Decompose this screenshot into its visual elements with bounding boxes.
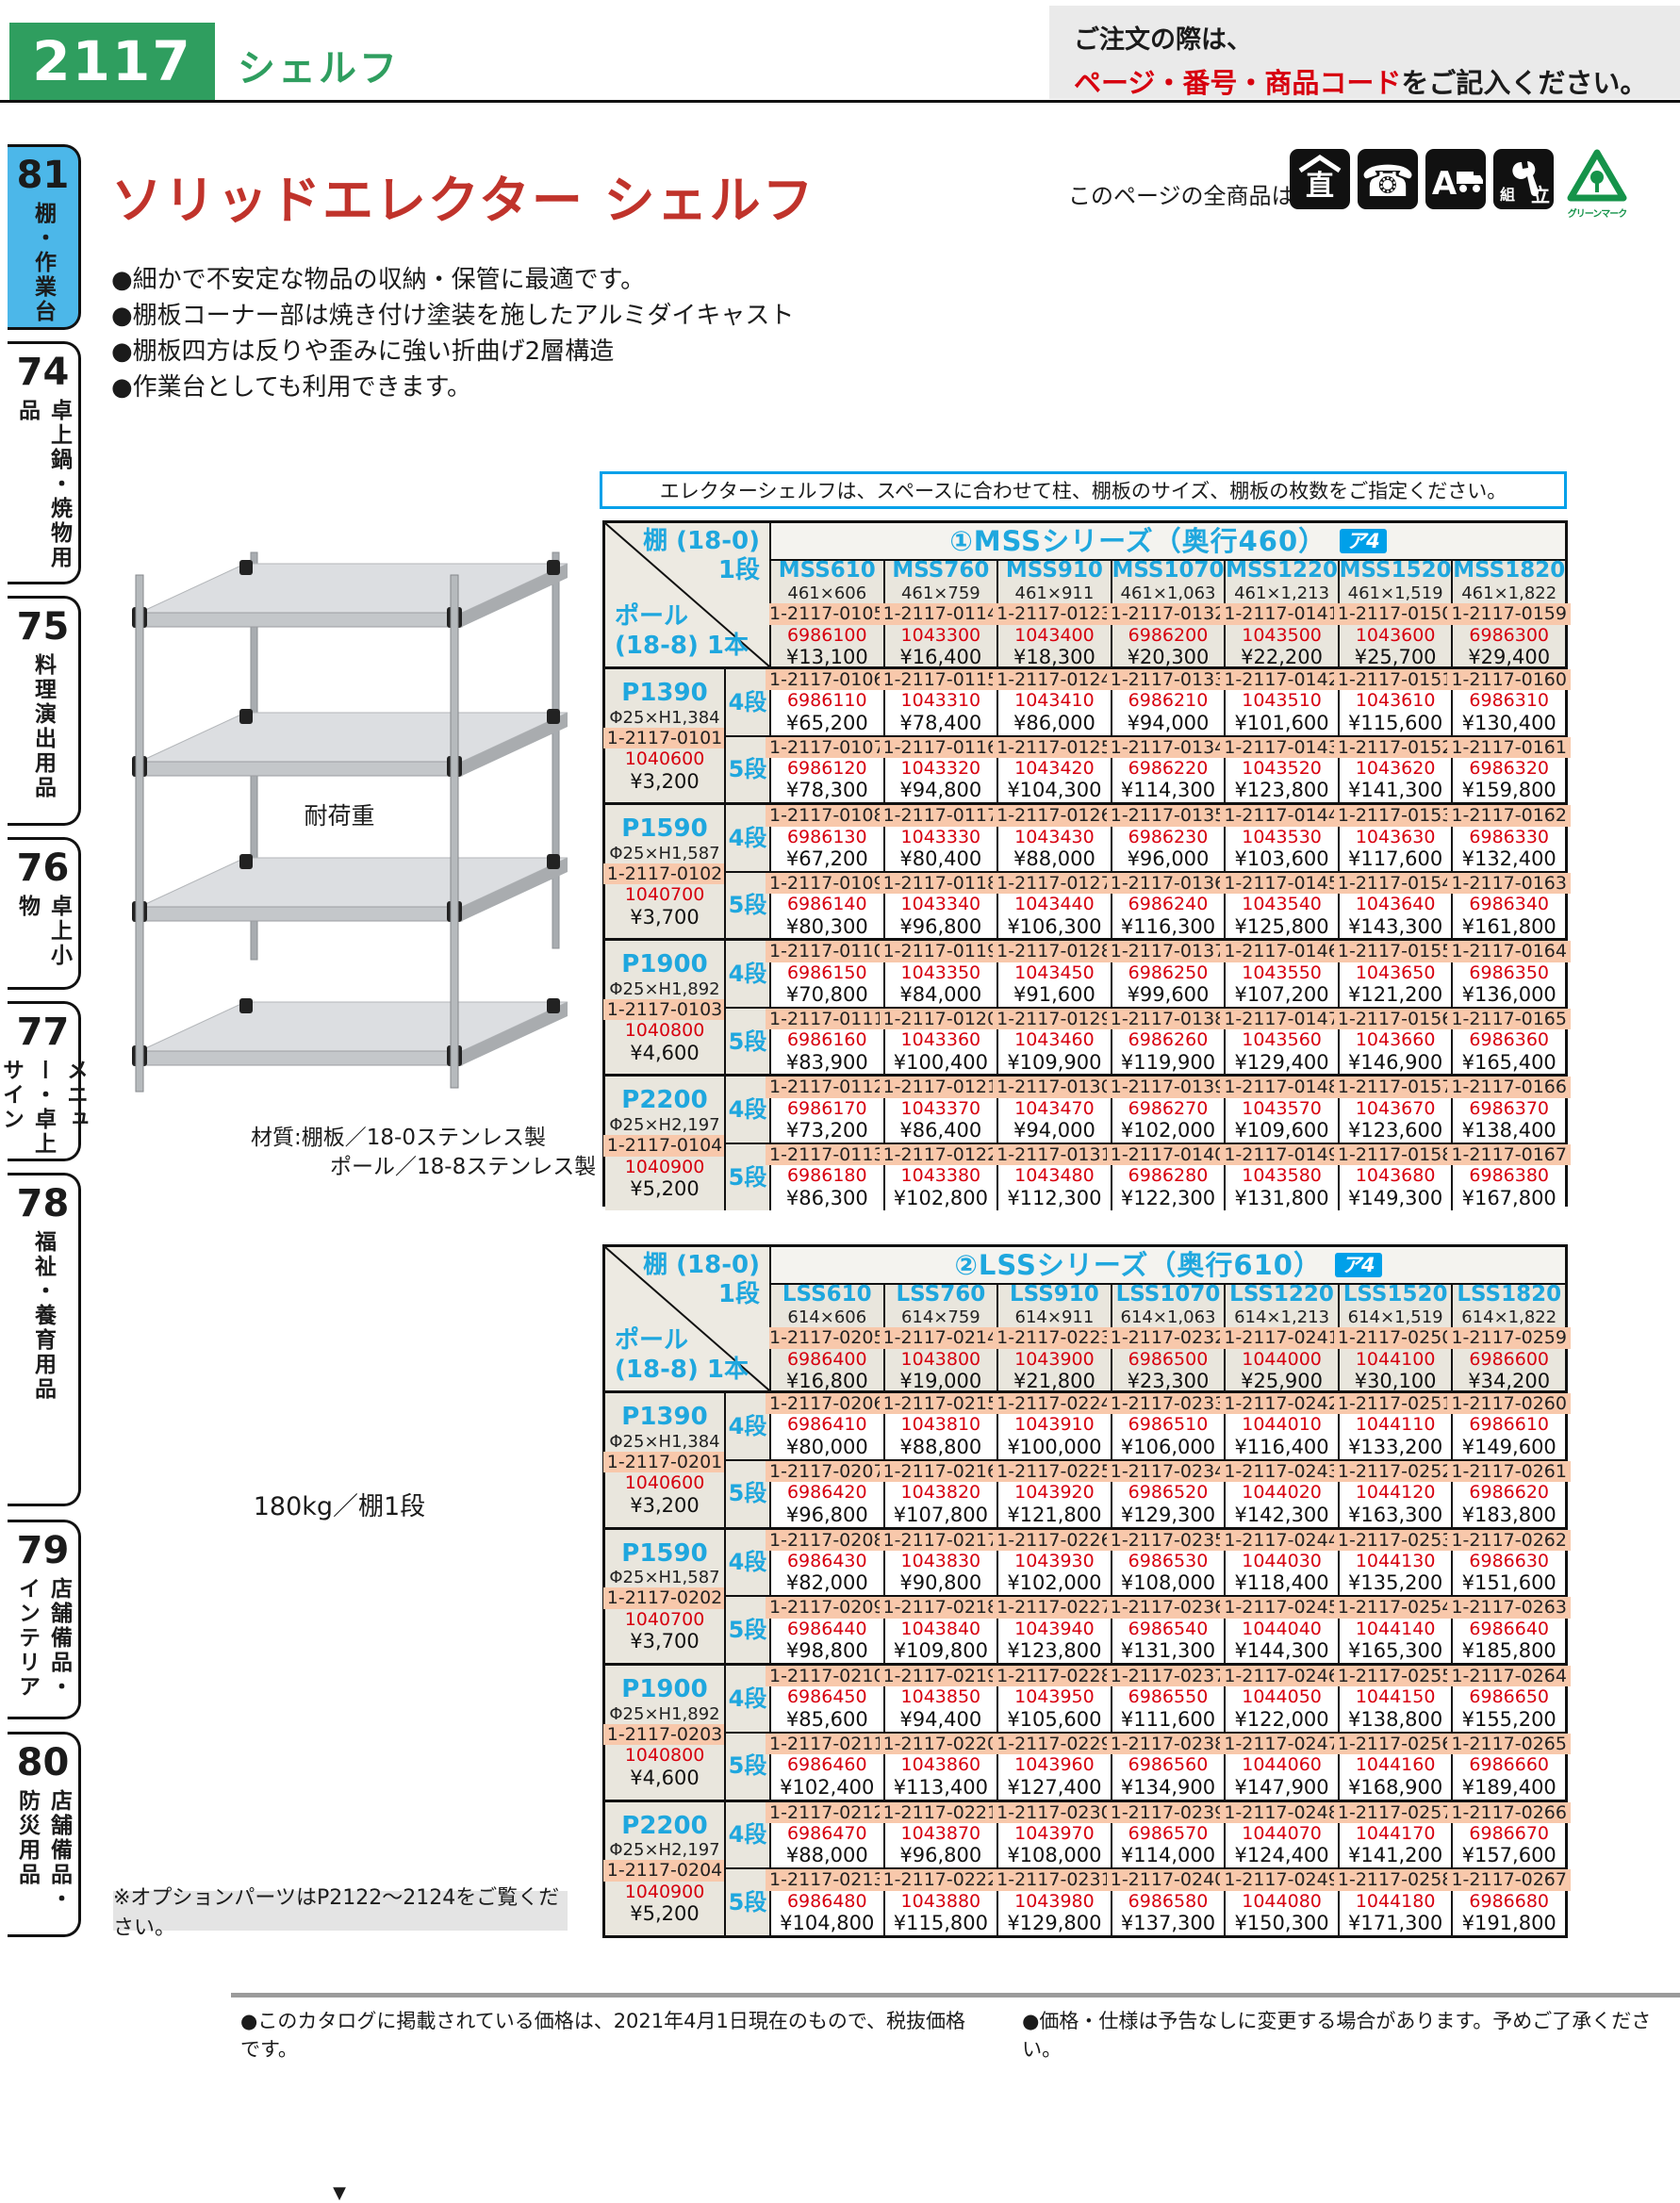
tier-label: 4段 bbox=[729, 689, 767, 715]
sidebar-tab-74-tabletop-pots[interactable]: 74 卓上鍋・焼物用品 bbox=[8, 341, 81, 584]
price-cell: 1-2117-01616986320¥159,800 bbox=[1451, 735, 1565, 803]
item-code: 6986130 bbox=[787, 827, 867, 847]
sidebar-tab-75-presentation[interactable]: 75 料理演出用品 bbox=[8, 596, 81, 826]
price-cell: 1-2117-02551044150¥138,800 bbox=[1338, 1663, 1452, 1732]
item-code: 1043500 bbox=[1242, 625, 1322, 646]
pole-label-cell: P1390Φ25×H1,3841-2117-02011040600¥3,200 bbox=[605, 1390, 724, 1527]
price: ¥133,200 bbox=[1348, 1436, 1442, 1459]
model-name: MSS760 bbox=[892, 558, 989, 584]
table-corner-cell: 棚 (18-0)1段ポール(18-8) 1本 bbox=[605, 1247, 769, 1390]
price: ¥113,400 bbox=[894, 1776, 988, 1800]
price-cell: 1-2117-01461043550¥107,200 bbox=[1224, 938, 1338, 1007]
item-code: 1043630 bbox=[1356, 827, 1436, 847]
price-cell: 1-2117-02151043810¥88,800 bbox=[883, 1390, 997, 1459]
tier-label: 5段 bbox=[729, 1164, 767, 1191]
price: ¥80,400 bbox=[899, 847, 981, 871]
product-code: 1-2117-0229 bbox=[993, 1734, 1116, 1754]
price-cell: 1-2117-02336986510¥106,000 bbox=[1111, 1390, 1225, 1459]
product-code: 1-2117-0118 bbox=[880, 873, 1003, 894]
corner-shelf-header: 棚 (18-0)1段 bbox=[643, 527, 760, 585]
item-code: 1043650 bbox=[1356, 962, 1436, 983]
price-cell: 1-2117-01086986130¥67,200 bbox=[769, 802, 883, 871]
price: ¥122,000 bbox=[1234, 1708, 1328, 1732]
item-code: 1043920 bbox=[1014, 1482, 1095, 1503]
item-code: 1040700 bbox=[625, 1609, 705, 1630]
model-name: MSS1070 bbox=[1112, 558, 1225, 584]
price: ¥151,600 bbox=[1462, 1571, 1556, 1595]
price-cell: 1-2117-02616986620¥183,800 bbox=[1451, 1459, 1565, 1527]
column-header-cell: LSS910614×9111-2117-02231043900¥21,800 bbox=[996, 1283, 1111, 1390]
price-cell: 1-2117-01636986340¥161,800 bbox=[1451, 871, 1565, 939]
price-cell: 1-2117-02281043950¥105,600 bbox=[996, 1663, 1111, 1732]
sidebar-tab-81-shelving[interactable]: 81 棚・作業台 bbox=[8, 144, 81, 330]
product-code: 1-2117-0221 bbox=[880, 1802, 1003, 1823]
price: ¥96,800 bbox=[899, 1844, 981, 1867]
shelf-size: 461×1,213 bbox=[1234, 584, 1329, 603]
price-cell: 1-2117-01076986120¥78,300 bbox=[769, 735, 883, 803]
product-code: 1-2117-0120 bbox=[880, 1009, 1003, 1029]
price-cell: 1-2117-02581044180¥171,300 bbox=[1338, 1867, 1452, 1935]
price: ¥103,600 bbox=[1234, 847, 1328, 871]
price: ¥134,900 bbox=[1121, 1776, 1215, 1800]
price: ¥100,000 bbox=[1007, 1436, 1101, 1459]
item-code: 1043400 bbox=[1014, 625, 1095, 646]
feature-bullets: ●細かで不安定な物品の収納・保管に最適です。 ●棚板コーナー部は焼き付け塗装を施… bbox=[111, 262, 794, 405]
product-code: 1-2117-0106 bbox=[766, 669, 889, 690]
item-code: 1044180 bbox=[1356, 1891, 1436, 1912]
price-cell: 1-2117-01386986260¥119,900 bbox=[1111, 1007, 1225, 1075]
product-code: 1-2117-0151 bbox=[1334, 669, 1458, 690]
product-code: 1-2117-0130 bbox=[993, 1077, 1116, 1097]
product-code: 1-2117-0140 bbox=[1107, 1144, 1230, 1165]
tier-label: 5段 bbox=[729, 1889, 767, 1915]
price: ¥149,300 bbox=[1348, 1187, 1442, 1210]
price: ¥163,300 bbox=[1348, 1504, 1442, 1527]
item-code: 1044060 bbox=[1242, 1754, 1322, 1775]
product-code: 1-2117-0239 bbox=[1107, 1802, 1230, 1823]
product-code: 1-2117-0149 bbox=[1220, 1144, 1343, 1165]
model-name: MSS1820 bbox=[1453, 558, 1565, 584]
pole-size: Φ25×H1,892 bbox=[609, 979, 719, 999]
product-code: 1-2117-0160 bbox=[1447, 669, 1571, 690]
price: ¥115,600 bbox=[1348, 712, 1442, 735]
tier-cell: 4段 bbox=[724, 1663, 769, 1732]
sidebar-tab-80-disaster-goods[interactable]: 80 店舗備品・防災用品 bbox=[8, 1732, 81, 1937]
sidebar-tab-79-store-interior[interactable]: 79 店舗備品・インテリア bbox=[8, 1520, 81, 1719]
item-code: 6986260 bbox=[1128, 1029, 1209, 1050]
product-code: 1-2117-0242 bbox=[1220, 1393, 1343, 1414]
product-code: 1-2117-0163 bbox=[1447, 873, 1571, 894]
index-badge: ア4 bbox=[1335, 1253, 1382, 1278]
svg-text:組: 組 bbox=[1500, 186, 1515, 204]
footer-divider bbox=[231, 1993, 1680, 1997]
item-code: 6986170 bbox=[787, 1098, 867, 1119]
pole-label-cell: P1900Φ25×H1,8921-2117-01031040800¥4,600 bbox=[605, 938, 724, 1074]
price: ¥5,200 bbox=[630, 1177, 699, 1201]
price: ¥80,300 bbox=[786, 915, 868, 939]
item-code: 1043410 bbox=[1014, 690, 1095, 711]
price-cell: 1-2117-02676986680¥191,800 bbox=[1451, 1867, 1565, 1935]
catalog-page: { "colors":{"accent_blue":"#1fa7de","bad… bbox=[0, 0, 1680, 2042]
sidebar-tab-77-menu-signs[interactable]: 77 メニュー・卓上サイン bbox=[8, 1001, 81, 1161]
price: ¥123,800 bbox=[1234, 779, 1328, 802]
product-code: 1-2117-0253 bbox=[1334, 1530, 1458, 1551]
product-code: 1-2117-0113 bbox=[766, 1144, 889, 1165]
item-code: 6986280 bbox=[1128, 1165, 1209, 1186]
price-cell: 1-2117-02356986530¥108,000 bbox=[1111, 1527, 1225, 1596]
product-code: 1-2117-0201 bbox=[603, 1452, 727, 1472]
tier-cell: 4段 bbox=[724, 1390, 769, 1459]
price: ¥91,600 bbox=[1013, 983, 1095, 1007]
price: ¥99,600 bbox=[1128, 983, 1210, 1007]
price: ¥116,400 bbox=[1234, 1436, 1328, 1459]
tab-number: 78 bbox=[17, 1185, 70, 1223]
product-code: 1-2117-0110 bbox=[766, 941, 889, 962]
model-name: LSS1220 bbox=[1229, 1282, 1334, 1307]
item-code: 1043370 bbox=[901, 1098, 981, 1119]
item-code: 1043620 bbox=[1356, 758, 1436, 779]
price: ¥147,900 bbox=[1234, 1776, 1328, 1800]
price-cell: 1-2117-01531043630¥117,600 bbox=[1338, 802, 1452, 871]
product-series-title: ソリッドエレクター シェルフ bbox=[111, 158, 815, 233]
price-cell: 1-2117-02406986580¥137,300 bbox=[1111, 1867, 1225, 1935]
tier-cell: 4段 bbox=[724, 1527, 769, 1596]
price-cell: 1-2117-01181043340¥96,800 bbox=[883, 871, 997, 939]
item-code: 6986610 bbox=[1469, 1414, 1549, 1435]
item-code: 1043540 bbox=[1242, 894, 1322, 914]
price: ¥80,000 bbox=[786, 1436, 868, 1459]
product-code: 1-2117-0261 bbox=[1447, 1461, 1571, 1482]
price-cell: 1-2117-01271043440¥106,300 bbox=[996, 871, 1111, 939]
item-code: 1043530 bbox=[1242, 827, 1322, 847]
shelf-size: 614×1,063 bbox=[1121, 1307, 1216, 1327]
product-code: 1-2117-0241 bbox=[1220, 1327, 1343, 1348]
price-cell: 1-2117-01106986150¥70,800 bbox=[769, 938, 883, 1007]
product-code: 1-2117-0224 bbox=[993, 1393, 1116, 1414]
model-name: LSS1820 bbox=[1457, 1282, 1561, 1307]
product-code: 1-2117-0152 bbox=[1334, 737, 1458, 758]
price: ¥78,400 bbox=[899, 712, 981, 735]
item-code: 6986500 bbox=[1128, 1349, 1209, 1370]
column-header-cell: LSS1820614×1,8221-2117-02596986600¥34,20… bbox=[1451, 1283, 1565, 1390]
product-code: 1-2117-0259 bbox=[1447, 1327, 1571, 1348]
price: ¥67,200 bbox=[786, 847, 868, 871]
sidebar-tab-76-tabletop-items[interactable]: 76 卓上小物 bbox=[8, 837, 81, 990]
price-cell: 1-2117-01301043470¥94,000 bbox=[996, 1074, 1111, 1143]
product-code: 1-2117-0124 bbox=[993, 669, 1116, 690]
product-code: 1-2117-0125 bbox=[993, 737, 1116, 758]
price: ¥104,300 bbox=[1007, 779, 1101, 802]
product-code: 1-2117-0220 bbox=[880, 1734, 1003, 1754]
price-cell: 1-2117-02171043830¥90,800 bbox=[883, 1527, 997, 1596]
shelf-size: 614×759 bbox=[901, 1307, 980, 1327]
product-code: 1-2117-0114 bbox=[880, 603, 1003, 624]
product-code: 1-2117-0117 bbox=[880, 805, 1003, 826]
pole-label-cell: P1900Φ25×H1,8921-2117-02031040800¥4,600 bbox=[605, 1663, 724, 1800]
price: ¥171,300 bbox=[1348, 1912, 1442, 1935]
tier-cell: 5段 bbox=[724, 871, 769, 939]
product-code: 1-2117-0247 bbox=[1220, 1734, 1343, 1754]
product-code: 1-2117-0139 bbox=[1107, 1077, 1230, 1097]
item-code: 1044050 bbox=[1242, 1686, 1322, 1707]
price: ¥124,400 bbox=[1234, 1844, 1328, 1867]
price: ¥114,300 bbox=[1121, 779, 1215, 802]
price: ¥150,300 bbox=[1234, 1912, 1328, 1935]
price-cell: 1-2117-02126986470¥88,000 bbox=[769, 1800, 883, 1868]
corner-shelf-line2: 1段 bbox=[643, 1280, 760, 1309]
product-code: 1-2117-0134 bbox=[1107, 737, 1230, 758]
price-cell: 1-2117-01356986230¥96,000 bbox=[1111, 802, 1225, 871]
price: ¥88,000 bbox=[786, 1844, 868, 1867]
product-code: 1-2117-0227 bbox=[993, 1597, 1116, 1618]
item-code: 6986160 bbox=[787, 1029, 867, 1050]
price-cell: 1-2117-01066986110¥65,200 bbox=[769, 666, 883, 735]
item-code: 6986210 bbox=[1128, 690, 1209, 711]
tab-label: 棚・作業台 bbox=[27, 202, 59, 324]
product-code: 1-2117-0203 bbox=[603, 1724, 727, 1745]
price: ¥114,000 bbox=[1121, 1844, 1215, 1867]
price: ¥116,300 bbox=[1121, 915, 1215, 939]
price: ¥94,400 bbox=[899, 1708, 981, 1732]
item-code: 1044120 bbox=[1356, 1482, 1436, 1503]
product-code: 1-2117-0231 bbox=[993, 1869, 1116, 1890]
price-cell: 1-2117-02181043840¥109,800 bbox=[883, 1595, 997, 1663]
item-code: 1044130 bbox=[1356, 1551, 1436, 1571]
product-code: 1-2117-0202 bbox=[603, 1587, 727, 1608]
series-title: ①MSSシリーズ（奥行460）ア4 bbox=[769, 523, 1565, 559]
price: ¥94,000 bbox=[1013, 1119, 1095, 1143]
item-code: 6986570 bbox=[1128, 1823, 1209, 1844]
price: ¥167,800 bbox=[1462, 1187, 1556, 1210]
item-code: 6986270 bbox=[1128, 1098, 1209, 1119]
corner-shelf-line1: 棚 (18-0) bbox=[643, 527, 760, 556]
price-cell: 1-2117-01096986140¥80,300 bbox=[769, 871, 883, 939]
item-code: 1043850 bbox=[901, 1686, 981, 1707]
product-code: 1-2117-0157 bbox=[1334, 1077, 1458, 1097]
pole-size: Φ25×H1,384 bbox=[609, 708, 719, 728]
item-code: 1043680 bbox=[1356, 1165, 1436, 1186]
product-code: 1-2117-0146 bbox=[1220, 941, 1343, 962]
product-code: 1-2117-0264 bbox=[1447, 1666, 1571, 1686]
pole-name: P1590 bbox=[621, 1539, 707, 1569]
item-code: 6986510 bbox=[1128, 1414, 1209, 1435]
price-cell: 1-2117-02221043880¥115,800 bbox=[883, 1867, 997, 1935]
product-code: 1-2117-0225 bbox=[993, 1461, 1116, 1482]
item-code: 6986350 bbox=[1469, 962, 1549, 983]
product-code: 1-2117-0127 bbox=[993, 873, 1116, 894]
product-code: 1-2117-0208 bbox=[766, 1530, 889, 1551]
price: ¥94,800 bbox=[899, 779, 981, 802]
product-code: 1-2117-0137 bbox=[1107, 941, 1230, 962]
price: ¥85,600 bbox=[786, 1708, 868, 1732]
price: ¥131,300 bbox=[1121, 1639, 1215, 1663]
order-note-line1: ご注文の際は、 bbox=[1074, 19, 1680, 56]
item-code: 1044070 bbox=[1242, 1823, 1322, 1844]
product-code: 1-2117-0240 bbox=[1107, 1869, 1230, 1890]
item-code: 1043600 bbox=[1356, 625, 1436, 646]
item-code: 1043570 bbox=[1242, 1098, 1322, 1119]
price: ¥131,800 bbox=[1234, 1187, 1328, 1210]
item-code: 1043450 bbox=[1014, 962, 1095, 983]
corner-pole-line1: ポール bbox=[615, 602, 749, 632]
column-header-cell: MSS1070461×1,0631-2117-01326986200¥20,30… bbox=[1111, 559, 1225, 666]
product-code: 1-2117-0167 bbox=[1447, 1144, 1571, 1165]
service-icon-row: 直 ☎ A 組 立 グリーンマーク bbox=[1290, 149, 1633, 220]
product-code: 1-2117-0204 bbox=[603, 1860, 727, 1881]
item-code: 1043860 bbox=[901, 1754, 981, 1775]
item-code: 1043460 bbox=[1014, 1029, 1095, 1050]
price: ¥4,600 bbox=[630, 1767, 699, 1790]
price: ¥100,400 bbox=[894, 1051, 988, 1075]
item-code: 6986430 bbox=[787, 1551, 867, 1571]
price-cell: 1-2117-02646986650¥155,200 bbox=[1451, 1663, 1565, 1732]
product-code: 1-2117-0111 bbox=[766, 1009, 889, 1029]
product-code: 1-2117-0123 bbox=[993, 603, 1116, 624]
item-code: 1043810 bbox=[901, 1414, 981, 1435]
item-code: 1043510 bbox=[1242, 690, 1322, 711]
price: ¥121,800 bbox=[1007, 1504, 1101, 1527]
price: ¥141,200 bbox=[1348, 1844, 1442, 1867]
price: ¥105,600 bbox=[1007, 1708, 1101, 1732]
price-cell: 1-2117-01666986370¥138,400 bbox=[1451, 1074, 1565, 1143]
price-cell: 1-2117-02421044010¥116,400 bbox=[1224, 1390, 1338, 1459]
item-code: 6986200 bbox=[1128, 625, 1209, 646]
price: ¥73,200 bbox=[786, 1119, 868, 1143]
item-code: 6986600 bbox=[1469, 1349, 1549, 1370]
item-code: 1043440 bbox=[1014, 894, 1095, 914]
product-code: 1-2117-0213 bbox=[766, 1869, 889, 1890]
item-code: 6986220 bbox=[1128, 758, 1209, 779]
price: ¥183,800 bbox=[1462, 1504, 1556, 1527]
price: ¥119,900 bbox=[1121, 1051, 1215, 1075]
price-cell: 1-2117-01311043480¥112,300 bbox=[996, 1143, 1111, 1210]
tab-number: 74 bbox=[17, 353, 70, 391]
product-code: 1-2117-0145 bbox=[1220, 873, 1343, 894]
pole-label-cell: P1590Φ25×H1,5871-2117-02021040700¥3,700 bbox=[605, 1527, 724, 1664]
price: ¥3,700 bbox=[630, 1630, 699, 1653]
footer-note-price-date: ●このカタログに掲載されている価格は、2021年4月1日現在のもので、税抜価格で… bbox=[240, 2006, 980, 2063]
pole-name: P2200 bbox=[621, 1086, 707, 1115]
option-parts-note: ※オプションパーツはP2122～2124をご覧ください。 bbox=[113, 1891, 568, 1931]
item-code: 6986470 bbox=[787, 1823, 867, 1844]
price: ¥129,800 bbox=[1007, 1912, 1101, 1935]
shelf-size: 614×1,822 bbox=[1461, 1307, 1556, 1327]
tab-number: 77 bbox=[17, 1013, 70, 1051]
product-code: 1-2117-0161 bbox=[1447, 737, 1571, 758]
price-cell: 1-2117-02366986540¥131,300 bbox=[1111, 1595, 1225, 1663]
price-cell: 1-2117-02571044170¥141,200 bbox=[1338, 1800, 1452, 1868]
item-code: 1043430 bbox=[1014, 827, 1095, 847]
item-code: 6986370 bbox=[1469, 1098, 1549, 1119]
product-code: 1-2117-0246 bbox=[1220, 1666, 1343, 1686]
price-cell: 1-2117-01291043460¥109,900 bbox=[996, 1007, 1111, 1075]
sidebar-tab-78-welfare[interactable]: 78 福祉・養育用品 bbox=[8, 1173, 81, 1506]
product-code: 1-2117-0206 bbox=[766, 1393, 889, 1414]
price-cell: 1-2117-02076986420¥96,800 bbox=[769, 1459, 883, 1527]
item-code: 6986520 bbox=[1128, 1482, 1209, 1503]
price-cell: 1-2117-01251043420¥104,300 bbox=[996, 735, 1111, 803]
product-code: 1-2117-0218 bbox=[880, 1597, 1003, 1618]
price-cell: 1-2117-02261043930¥102,000 bbox=[996, 1527, 1111, 1596]
price-cell: 1-2117-02491044080¥150,300 bbox=[1224, 1867, 1338, 1935]
item-code: 1044170 bbox=[1356, 1823, 1436, 1844]
pole-size: Φ25×H1,587 bbox=[609, 1568, 719, 1587]
price-cell: 1-2117-01191043350¥84,000 bbox=[883, 938, 997, 1007]
price-cell: 1-2117-02191043850¥94,400 bbox=[883, 1663, 997, 1732]
all-products-label: このページの全商品は bbox=[1068, 177, 1294, 210]
price: ¥155,200 bbox=[1462, 1708, 1556, 1732]
price: ¥136,000 bbox=[1462, 983, 1556, 1007]
item-code: 1043840 bbox=[901, 1619, 981, 1639]
material-note: 材質:棚板／18-0ステンレス製 ポール／18-8ステンレス製 bbox=[251, 1124, 596, 1182]
price-cell: 1-2117-02666986670¥157,600 bbox=[1451, 1800, 1565, 1868]
price: ¥185,800 bbox=[1462, 1639, 1556, 1663]
item-code: 6986340 bbox=[1469, 894, 1549, 914]
feature-bullet: ●棚板四方は反りや歪みに強い折曲げ2層構造 bbox=[111, 334, 794, 370]
product-code: 1-2117-0230 bbox=[993, 1802, 1116, 1823]
svg-text:A: A bbox=[1432, 165, 1458, 203]
truck-delivery-icon: A bbox=[1425, 149, 1486, 209]
price: ¥125,800 bbox=[1234, 915, 1328, 939]
product-code: 1-2117-0156 bbox=[1334, 1009, 1458, 1029]
price-cell: 1-2117-01261043430¥88,000 bbox=[996, 802, 1111, 871]
product-code: 1-2117-0108 bbox=[766, 805, 889, 826]
item-code: 1043670 bbox=[1356, 1098, 1436, 1119]
price-cell: 1-2117-01481043570¥109,600 bbox=[1224, 1074, 1338, 1143]
price: ¥111,600 bbox=[1121, 1708, 1215, 1732]
price: ¥3,200 bbox=[630, 1494, 699, 1518]
price: ¥143,300 bbox=[1348, 915, 1442, 939]
item-code: 1044010 bbox=[1242, 1414, 1322, 1435]
column-header-cell: MSS1220461×1,2131-2117-01411043500¥22,20… bbox=[1224, 559, 1338, 666]
product-code: 1-2117-0155 bbox=[1334, 941, 1458, 962]
column-header-cell: MSS1520461×1,5191-2117-01501043600¥25,70… bbox=[1338, 559, 1452, 666]
tier-label: 5段 bbox=[729, 1617, 767, 1643]
product-code: 1-2117-0150 bbox=[1334, 603, 1458, 624]
item-code: 1043580 bbox=[1242, 1165, 1322, 1186]
price-cell: 1-2117-02461044050¥122,000 bbox=[1224, 1663, 1338, 1732]
tier-label: 4段 bbox=[729, 825, 767, 851]
product-code: 1-2117-0214 bbox=[880, 1327, 1003, 1348]
price: ¥102,000 bbox=[1121, 1119, 1215, 1143]
item-code: 1043960 bbox=[1014, 1754, 1095, 1775]
item-code: 1043870 bbox=[901, 1823, 981, 1844]
tier-cell: 4段 bbox=[724, 938, 769, 1007]
price: ¥84,000 bbox=[899, 983, 981, 1007]
product-code: 1-2117-0102 bbox=[603, 863, 727, 884]
price-cell: 1-2117-02161043820¥107,800 bbox=[883, 1459, 997, 1527]
price: ¥117,600 bbox=[1348, 847, 1442, 871]
price-cell: 1-2117-01396986270¥102,000 bbox=[1111, 1074, 1225, 1143]
item-code: 1043950 bbox=[1014, 1686, 1095, 1707]
item-code: 1040900 bbox=[625, 1157, 705, 1177]
shelf-size: 461×1,822 bbox=[1461, 584, 1556, 603]
price: ¥135,200 bbox=[1348, 1571, 1442, 1595]
item-code: 6986310 bbox=[1469, 690, 1549, 711]
price: ¥94,000 bbox=[1128, 712, 1210, 735]
corner-shelf-line2: 1段 bbox=[643, 556, 760, 585]
price: ¥165,300 bbox=[1348, 1639, 1442, 1663]
price: ¥108,000 bbox=[1007, 1844, 1101, 1867]
product-code: 1-2117-0209 bbox=[766, 1597, 889, 1618]
item-code: 6986680 bbox=[1469, 1891, 1549, 1912]
item-code: 1044040 bbox=[1242, 1619, 1322, 1639]
product-code: 1-2117-0147 bbox=[1220, 1009, 1343, 1029]
price: ¥3,700 bbox=[630, 906, 699, 929]
price-cell: 1-2117-02136986480¥104,800 bbox=[769, 1867, 883, 1935]
item-code: 6986410 bbox=[787, 1414, 867, 1435]
product-code: 1-2117-0219 bbox=[880, 1666, 1003, 1686]
